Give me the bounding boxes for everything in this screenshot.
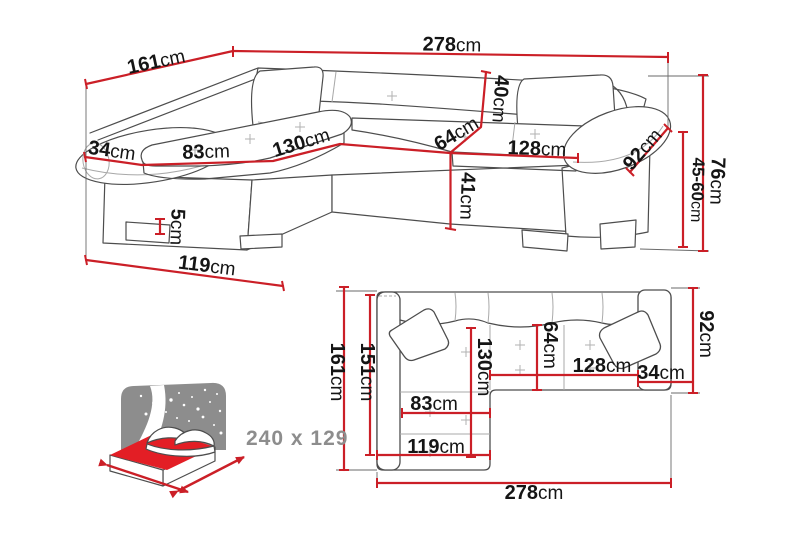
front-dim-chaise-seat-width: 83cm	[182, 140, 230, 164]
plan-dim-chaise-length: 130cm	[473, 338, 495, 397]
top-plan-view: 161cm 151cm 130cm 64cm 92cm 128cm 34cm 8…	[326, 287, 717, 504]
leg	[522, 230, 568, 251]
plan-dim-total-width: 278cm	[505, 482, 564, 504]
sofa-front-drawing	[72, 67, 680, 251]
plan-dim-chaise-seat-width: 83cm	[410, 393, 458, 415]
front-dim-backrest-height: 40cm	[487, 74, 512, 123]
leg	[240, 234, 282, 249]
plan-dim-side-depth: 161cm	[326, 343, 348, 402]
furniture-dimension-diagram: 161cm 278cm 34cm 83cm 130cm 64cm 40cm 12…	[0, 0, 800, 533]
plan-dim-seat-depth: 64cm	[539, 321, 561, 369]
leg	[126, 222, 170, 243]
front-dim-seat-height: 41cm	[455, 172, 479, 220]
front-dim-leg-height: 5cm	[165, 208, 188, 245]
leg	[600, 220, 636, 249]
plan-dim-inner-depth: 151cm	[356, 343, 378, 402]
front-perspective-view: 161cm 278cm 34cm 83cm 130cm 64cm 40cm 12…	[72, 33, 729, 291]
sleeping-function-icon: 240 x 129	[107, 383, 348, 492]
front-dim-side-depth: 161cm	[125, 45, 187, 79]
front-dim-total-width: 278cm	[422, 33, 481, 56]
sleeping-area-size-label: 240 x 129	[246, 427, 348, 450]
plan-left-armrest	[377, 292, 400, 470]
front-dim-seat-width: 128cm	[507, 137, 566, 161]
plan-dim-chaise-front-width: 119cm	[407, 436, 465, 458]
front-dim-chaise-front-width: 119cm	[177, 252, 237, 281]
plan-dim-seat-width: 128cm	[573, 355, 632, 377]
main-base-front	[332, 165, 578, 232]
front-dim-armrest-height-range: 45-60cm	[687, 157, 708, 222]
plan-dim-armrest-length: 92cm	[695, 310, 717, 358]
plan-dim-armrest-width: 34cm	[637, 362, 685, 384]
